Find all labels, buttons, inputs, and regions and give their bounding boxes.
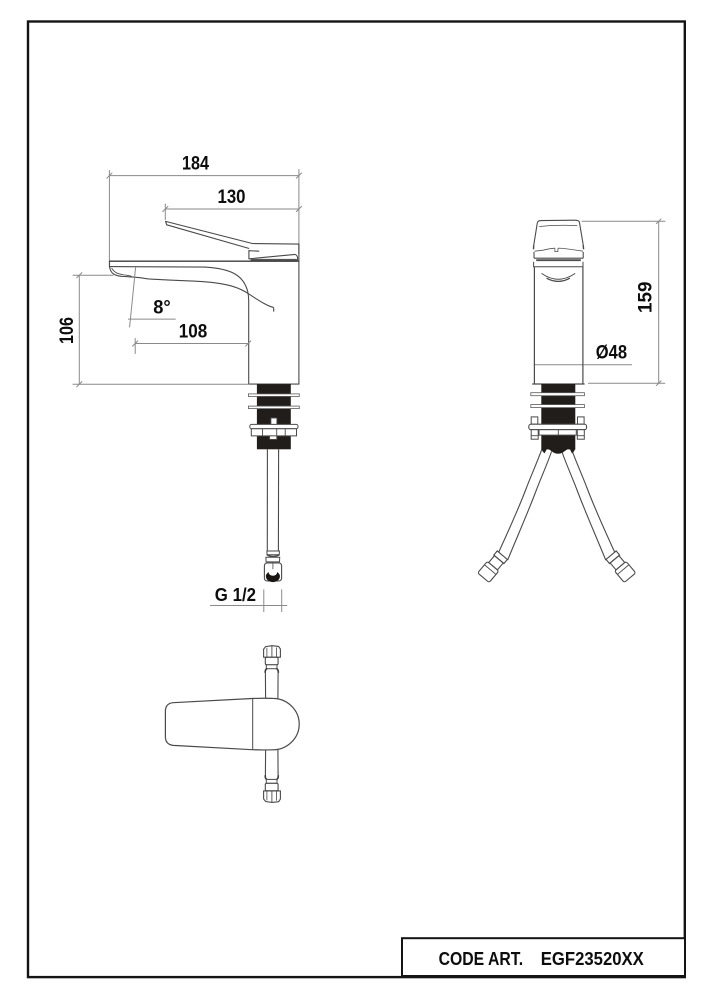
svg-text:130: 130 bbox=[218, 186, 246, 208]
svg-text:G 1/2: G 1/2 bbox=[215, 585, 256, 605]
svg-text:Ø48: Ø48 bbox=[596, 342, 627, 364]
svg-text:108: 108 bbox=[179, 320, 208, 342]
svg-text:184: 184 bbox=[182, 152, 209, 174]
svg-text:106: 106 bbox=[56, 317, 78, 344]
svg-text:CODE ART.: CODE ART. bbox=[439, 948, 523, 969]
svg-text:159: 159 bbox=[635, 281, 657, 313]
svg-text:8°: 8° bbox=[153, 297, 171, 319]
svg-text:EGF23520XX: EGF23520XX bbox=[541, 948, 645, 969]
